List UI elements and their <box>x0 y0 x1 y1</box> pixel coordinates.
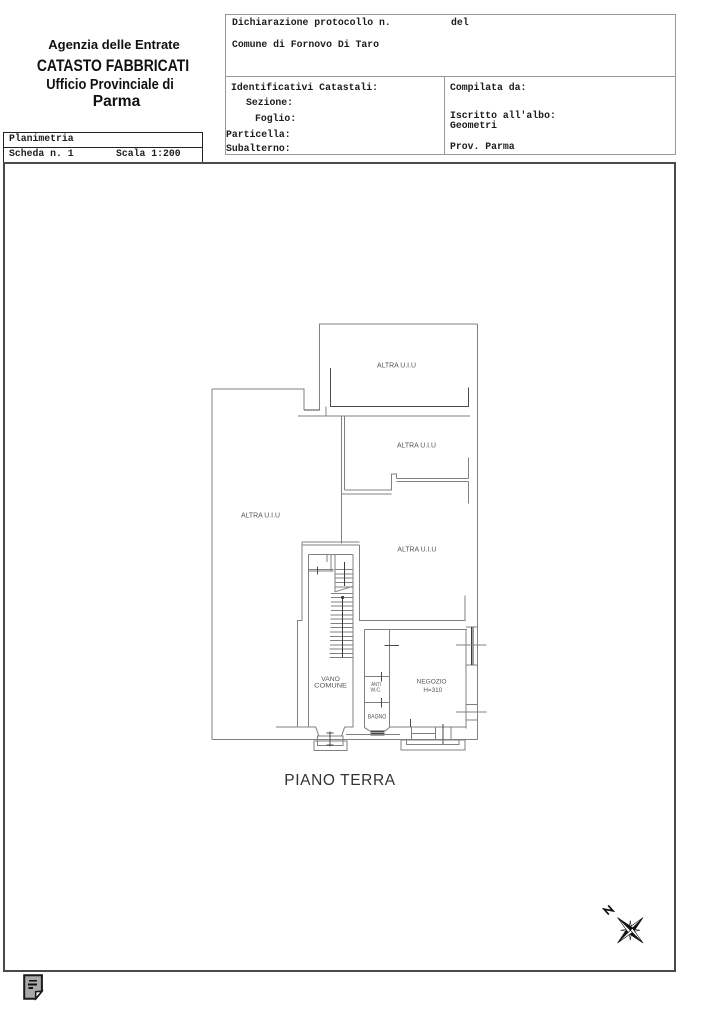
svg-text:ALTRA U.I.U: ALTRA U.I.U <box>397 547 436 554</box>
svg-text:NEGOZIO: NEGOZIO <box>417 679 447 686</box>
svg-text:W.C.: W.C. <box>371 688 382 694</box>
svg-text:ALTRA U.I.U: ALTRA U.I.U <box>397 443 436 450</box>
svg-text:ALTRA U.I.U: ALTRA U.I.U <box>241 513 280 520</box>
svg-text:ALTRA U.I.U: ALTRA U.I.U <box>377 363 416 370</box>
svg-text:COMUNE: COMUNE <box>314 683 347 690</box>
svg-text:BAGNO: BAGNO <box>368 714 387 721</box>
svg-text:H=310: H=310 <box>423 687 442 694</box>
